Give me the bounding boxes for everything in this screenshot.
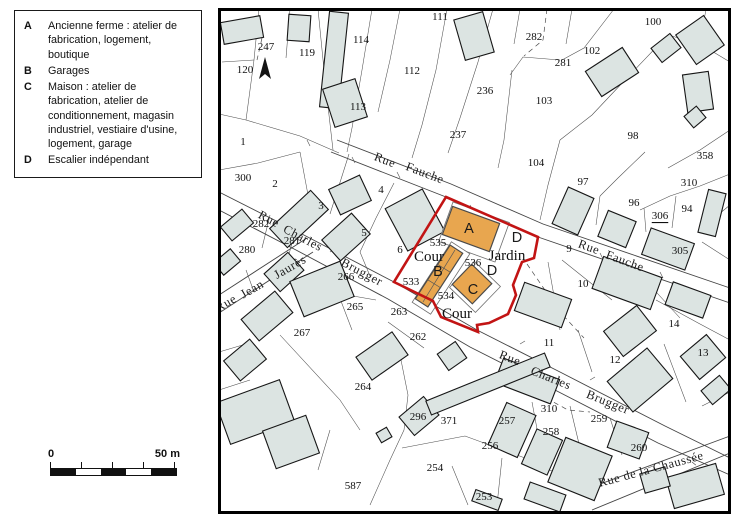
parcel-number: 280 [239, 244, 256, 256]
legend-text-A: Ancienne ferme : atelier de fabrication,… [48, 19, 192, 62]
parcel-number: 254 [427, 462, 444, 474]
parcel-number: 104 [528, 157, 545, 169]
parcel-number: 237 [450, 129, 467, 141]
parcel-number: 306 [652, 210, 669, 222]
parcel-number: 253 [476, 491, 493, 503]
parcel-number: 262 [410, 331, 427, 343]
building-letter: B [433, 264, 443, 280]
parcel-number: 536 [465, 257, 482, 269]
building-letter: D [512, 230, 522, 246]
parcel-number: 97 [578, 176, 590, 188]
scale-bar-labels: 0 50 m [46, 448, 180, 462]
parcel-number: 6 [397, 244, 403, 256]
parcel-number: 11 [544, 337, 555, 349]
parcel-number: 534 [438, 290, 455, 302]
scale-bar-graphic [50, 468, 177, 476]
parcel-number: 535 [430, 237, 447, 249]
parcel-number: 12 [610, 354, 621, 366]
building-letter: C [468, 282, 478, 298]
parcel-number: 587 [345, 480, 362, 492]
parcel-number: 371 [441, 415, 458, 427]
map-canvas[interactable]: 2471191201141111121131237282281102100236… [218, 8, 731, 514]
parcel-number: 5 [361, 227, 367, 239]
parcel-number: 13 [698, 347, 710, 359]
parcel-number: 247 [258, 41, 275, 53]
scale-max-label: 50 m [155, 448, 180, 460]
legend-key-B: B [24, 64, 46, 78]
parcel-number: 256 [482, 440, 499, 452]
parcel-number: 257 [499, 415, 516, 427]
scale-zero-label: 0 [48, 448, 54, 460]
parcel-number: 114 [353, 34, 370, 46]
parcel-number: 264 [355, 381, 372, 393]
parcel-number: 263 [391, 306, 408, 318]
parcel-number: 260 [631, 442, 648, 454]
parcel-number: 258 [543, 426, 560, 438]
parcel-number: 94 [682, 203, 694, 215]
building-letter: D [487, 263, 497, 279]
parcel-number: 113 [350, 101, 367, 113]
parcel-number: 120 [237, 64, 254, 76]
parcel-number: 96 [629, 197, 641, 209]
legend-items: AAncienne ferme : atelier de fabrication… [24, 19, 192, 168]
parcel-number: 14 [669, 318, 681, 330]
legend-text-C: Maison : atelier de fabrication, atelier… [48, 80, 192, 151]
scale-bar: 0 50 m [46, 448, 180, 482]
parcel-number: 10 [578, 278, 590, 290]
site-label: Jardin [489, 248, 526, 264]
parcel-number: 3 [318, 200, 324, 212]
parcel-number: 358 [697, 150, 714, 162]
parcel-number: 267 [294, 327, 311, 339]
parcel-number: 282 [526, 31, 543, 43]
site-label: Cour [414, 249, 444, 265]
parcel-number: 98 [628, 130, 640, 142]
legend-key-D: D [24, 153, 46, 167]
parcel-number: 281 [555, 57, 572, 69]
parcel-number: 265 [347, 301, 364, 313]
legend-box: AAncienne ferme : atelier de fabrication… [14, 10, 202, 178]
legend-text-B: Garages [48, 64, 192, 78]
parcel-number: 103 [536, 95, 553, 107]
cadastral-plan-page: AAncienne ferme : atelier de fabrication… [0, 0, 738, 522]
parcel-number: 9 [566, 243, 572, 255]
parcel-number: 296 [410, 411, 427, 423]
site-label: Cour [442, 306, 472, 322]
building-letter: A [464, 221, 474, 237]
parcel-number: 305 [672, 245, 689, 257]
cadastral-map: 2471191201141111121131237282281102100236… [218, 8, 731, 514]
parcel-number: 111 [432, 11, 448, 23]
legend-text-D: Escalier indépendant [48, 153, 192, 167]
parcel-number: 310 [681, 177, 698, 189]
parcel-number: 4 [378, 184, 384, 196]
parcel-number: 2 [272, 178, 278, 190]
parcel-number: 259 [591, 413, 608, 425]
parcel-number: 1 [240, 136, 246, 148]
parcel-number: 102 [584, 45, 601, 57]
legend-key-A: A [24, 19, 46, 62]
legend-key-C: C [24, 80, 46, 151]
parcel-number: 112 [404, 65, 420, 77]
parcel-number: 100 [645, 16, 662, 28]
parcel-number: 533 [403, 276, 420, 288]
parcel-number: 236 [477, 85, 494, 97]
parcel-number: 310 [541, 403, 558, 415]
parcel-number: 119 [299, 47, 316, 59]
parcel-number: 300 [235, 172, 252, 184]
